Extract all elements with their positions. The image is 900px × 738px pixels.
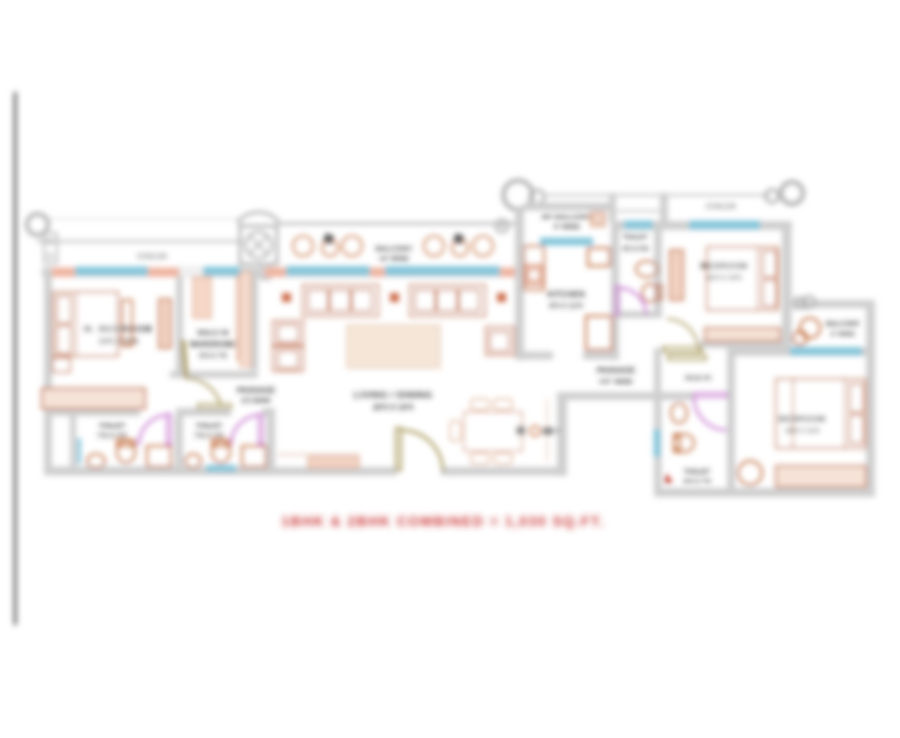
svg-text:3'3" WIDE: 3'3" WIDE xyxy=(600,379,633,386)
svg-text:10'0 X 11'6: 10'0 X 11'6 xyxy=(785,428,820,435)
svg-text:WALK IN: WALK IN xyxy=(197,328,229,337)
svg-text:TOILET: TOILET xyxy=(684,467,711,476)
svg-text:BALCONY: BALCONY xyxy=(375,244,412,253)
svg-text:4'0 X 5'0: 4'0 X 5'0 xyxy=(621,246,649,253)
svg-text:BEDROOM: BEDROOM xyxy=(701,261,748,271)
svg-text:6' WIDE: 6' WIDE xyxy=(831,331,856,338)
svg-text:10'0 X 10'0: 10'0 X 10'0 xyxy=(706,275,741,282)
svg-text:6' WIDE: 6' WIDE xyxy=(554,224,580,231)
svg-text:BALCONY: BALCONY xyxy=(826,321,861,328)
svg-text:8'0 X 11'0: 8'0 X 11'0 xyxy=(549,301,582,310)
svg-text:3'0 WIDE: 3'0 WIDE xyxy=(241,398,271,405)
svg-text:LIVING / DINING: LIVING / DINING xyxy=(354,390,433,401)
svg-text:CHAJJA: CHAJJA xyxy=(137,252,168,261)
svg-text:1BHK & 2BHK COMBINED = 1,030 S: 1BHK & 2BHK COMBINED = 1,030 SQ.FT. xyxy=(281,513,604,529)
svg-text:HS.B 3'0: HS.B 3'0 xyxy=(685,375,711,382)
svg-text:PASSAGE: PASSAGE xyxy=(237,386,276,395)
svg-text:TOILET: TOILET xyxy=(196,421,223,430)
svg-text:4'0 X 7'0: 4'0 X 7'0 xyxy=(683,479,711,486)
svg-text:14'6 X 11'0: 14'6 X 11'0 xyxy=(98,337,138,346)
svg-text:PASSAGE: PASSAGE xyxy=(597,366,636,375)
svg-text:CHAJJA: CHAJJA xyxy=(706,202,737,211)
svg-text:M. BEDROOM: M. BEDROOM xyxy=(84,324,153,335)
svg-text:13' WIDE: 13' WIDE xyxy=(379,256,409,263)
svg-text:BEDROOM: BEDROOM xyxy=(779,414,826,424)
svg-text:TOILET: TOILET xyxy=(622,232,649,241)
svg-text:20'0 X 10'0: 20'0 X 10'0 xyxy=(373,403,414,412)
svg-text:MY BALCONY: MY BALCONY xyxy=(542,212,592,221)
svg-text:5'0 X 7'6: 5'0 X 7'6 xyxy=(199,353,227,360)
svg-text:KITCHEN: KITCHEN xyxy=(547,289,585,299)
svg-text:7'6 X 4'0: 7'6 X 4'0 xyxy=(194,431,223,440)
svg-text:WARDROBE: WARDROBE xyxy=(189,340,237,349)
svg-text:7'6 X 4'0: 7'6 X 4'0 xyxy=(97,431,126,440)
svg-text:TOILET: TOILET xyxy=(99,421,126,430)
